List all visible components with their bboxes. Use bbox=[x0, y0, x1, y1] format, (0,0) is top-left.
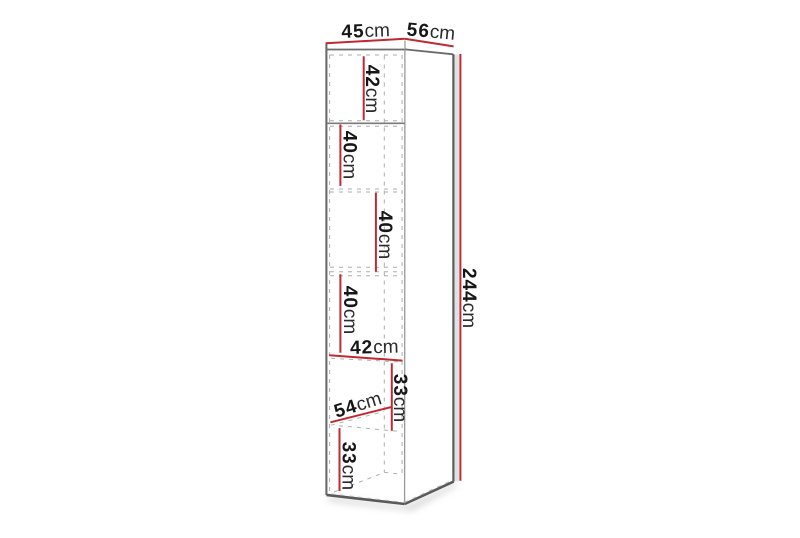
svg-text:33cm: 33cm bbox=[337, 442, 358, 490]
svg-text:244cm: 244cm bbox=[458, 268, 479, 328]
svg-text:40cm: 40cm bbox=[339, 131, 360, 179]
svg-text:56cm: 56cm bbox=[406, 19, 456, 44]
svg-text:42cm: 42cm bbox=[350, 337, 399, 359]
svg-text:33cm: 33cm bbox=[389, 374, 410, 422]
svg-text:40cm: 40cm bbox=[374, 211, 395, 259]
svg-text:40cm: 40cm bbox=[339, 286, 360, 334]
svg-text:45cm: 45cm bbox=[341, 20, 390, 43]
svg-text:42cm: 42cm bbox=[361, 65, 382, 113]
